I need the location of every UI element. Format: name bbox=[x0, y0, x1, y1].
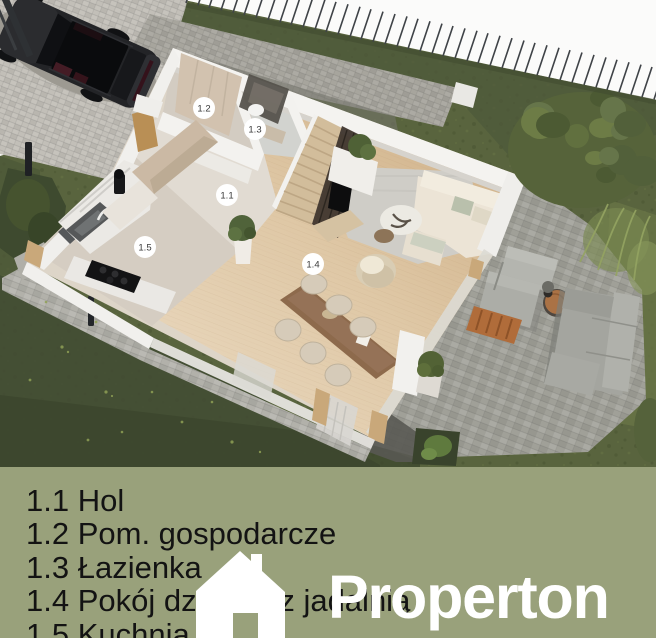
svg-text:Properton: Properton bbox=[328, 563, 609, 631]
